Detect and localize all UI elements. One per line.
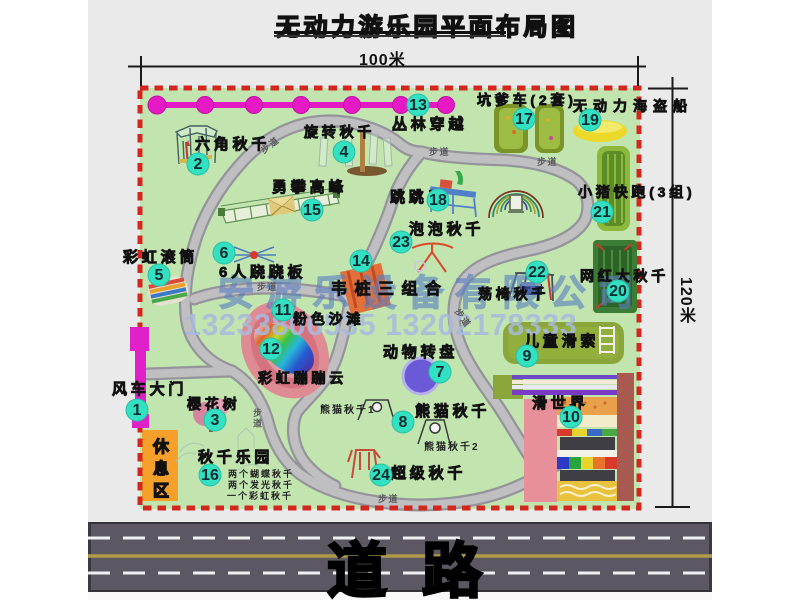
svg-text:12: 12 [262,341,280,358]
svg-text:7: 7 [436,364,445,381]
svg-text:21: 21 [593,204,611,221]
svg-text:8: 8 [399,414,408,431]
svg-text:18: 18 [429,192,447,209]
svg-text:10: 10 [562,409,580,426]
svg-text:3: 3 [211,412,220,429]
svg-text:22: 22 [528,264,546,281]
svg-text:17: 17 [515,111,533,128]
svg-text:4: 4 [340,144,349,161]
svg-text:2: 2 [194,156,203,173]
svg-text:14: 14 [352,253,370,270]
svg-text:13: 13 [409,97,427,114]
svg-text:23: 23 [392,234,410,251]
svg-text:15: 15 [303,202,321,219]
svg-text:20: 20 [609,283,627,300]
svg-text:19: 19 [581,112,599,129]
svg-text:6: 6 [220,245,229,262]
svg-text:16: 16 [201,467,219,484]
svg-text:1: 1 [133,402,142,419]
svg-text:5: 5 [155,267,164,284]
svg-text:24: 24 [372,467,390,484]
svg-text:11: 11 [275,302,292,319]
svg-text:9: 9 [523,348,532,365]
